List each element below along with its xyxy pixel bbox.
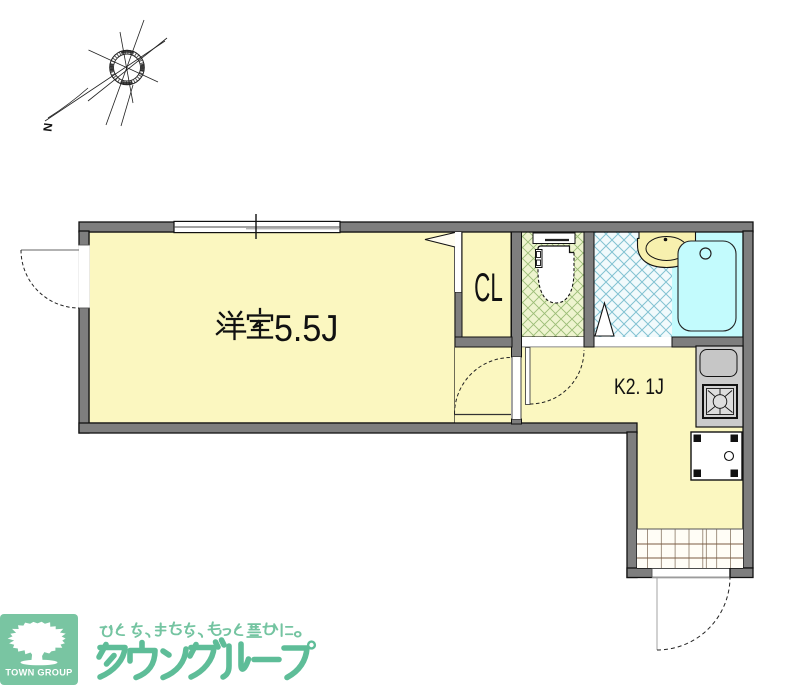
svg-text:5.5J: 5.5J [274,308,338,350]
svg-text:N: N [41,122,56,132]
svg-text:TOWN GROUP: TOWN GROUP [5,668,72,678]
svg-text:CL: CL [474,265,503,309]
svg-text:K2. 1J: K2. 1J [614,375,664,399]
